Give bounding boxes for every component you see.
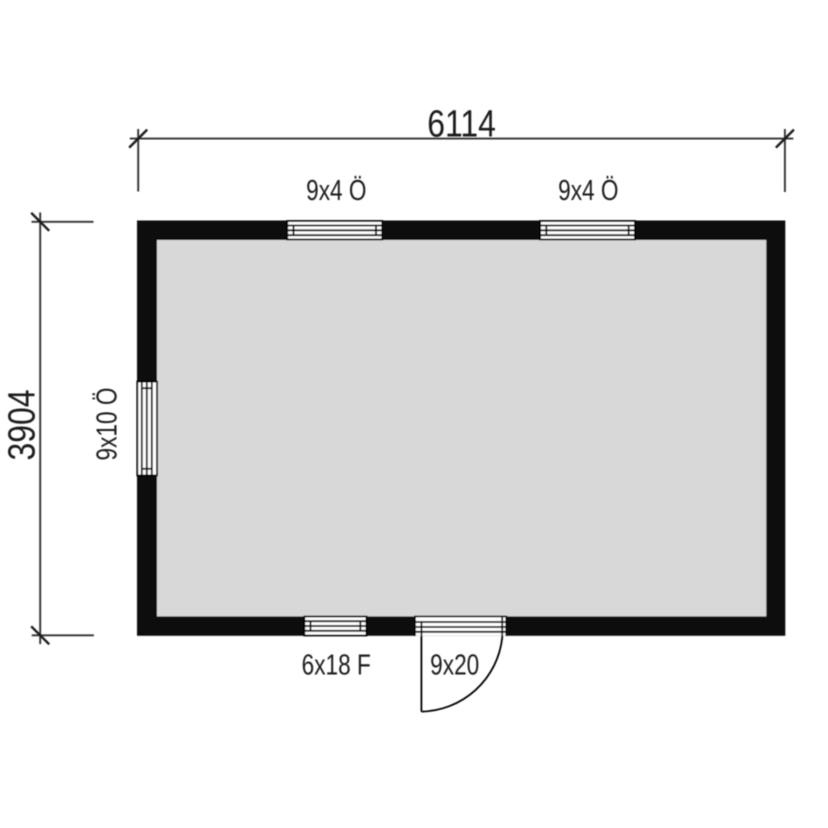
svg-text:9x20: 9x20 [430, 648, 479, 681]
svg-text:9x4 Ö: 9x4 Ö [306, 173, 366, 206]
svg-text:3904: 3904 [1, 390, 43, 461]
svg-text:6x18 F: 6x18 F [302, 648, 371, 681]
svg-text:6114: 6114 [427, 103, 496, 145]
svg-text:9x10 Ö: 9x10 Ö [90, 388, 123, 461]
svg-text:9x4 Ö: 9x4 Ö [558, 173, 618, 206]
